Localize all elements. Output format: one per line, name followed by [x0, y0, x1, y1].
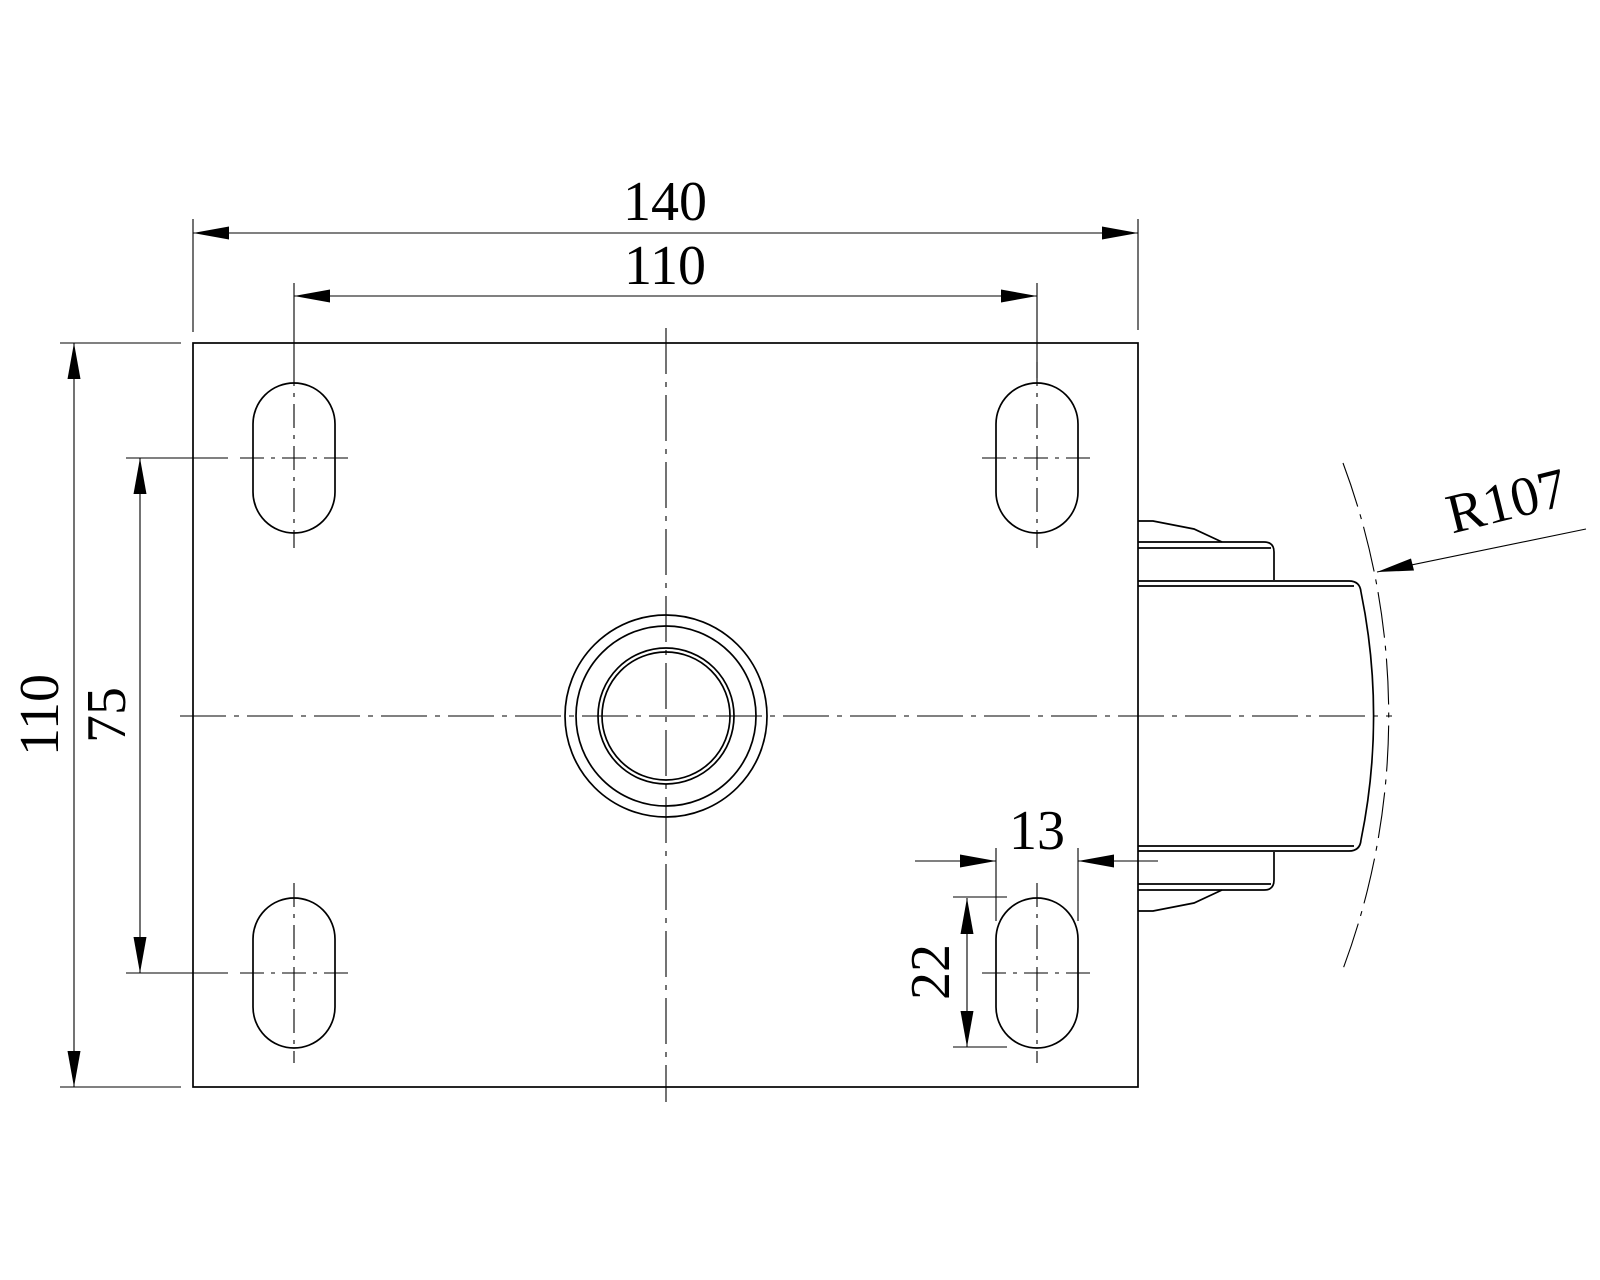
dim-140-arrow-left	[193, 227, 229, 240]
dim-13-arrow-right	[1078, 855, 1114, 868]
dim-label-hole-spacing-x: 110	[624, 235, 706, 297]
dim-110y-arrow-bottom	[68, 1051, 81, 1087]
dim-swivel-radius: R107	[1377, 457, 1586, 572]
caster-plate-drawing: 140 110 110 75 13	[0, 0, 1600, 1280]
cad-drawing-canvas: 140 110 110 75 13	[0, 0, 1600, 1280]
dim-label-swivel-radius: R107	[1440, 457, 1573, 547]
dim-22-arrow-bottom	[961, 1011, 974, 1047]
dim-label-plate-width: 140	[623, 171, 707, 233]
dim-22-arrow-top	[961, 898, 974, 934]
dim-13-arrow-left	[960, 855, 996, 868]
dim-75-arrow-top	[134, 458, 147, 494]
dim-label-hole-spacing-y: 75	[76, 687, 138, 743]
dim-110y-arrow-top	[68, 343, 81, 379]
dim-label-slot-width: 13	[1009, 800, 1065, 862]
dim-label-slot-length: 22	[900, 944, 962, 1000]
dim-110x-arrow-right	[1001, 290, 1037, 303]
dim-slot-length: 22	[900, 897, 1007, 1047]
dim-140-arrow-right	[1102, 227, 1138, 240]
axle-chamfer-top	[1138, 521, 1222, 542]
dim-75-arrow-bottom	[134, 937, 147, 973]
dim-label-plate-depth: 110	[9, 674, 71, 756]
dim-110x-arrow-left	[294, 290, 330, 303]
dim-r107-arrow	[1377, 559, 1414, 573]
centerlines	[180, 328, 1392, 1102]
axle-chamfer-bottom	[1138, 890, 1222, 911]
